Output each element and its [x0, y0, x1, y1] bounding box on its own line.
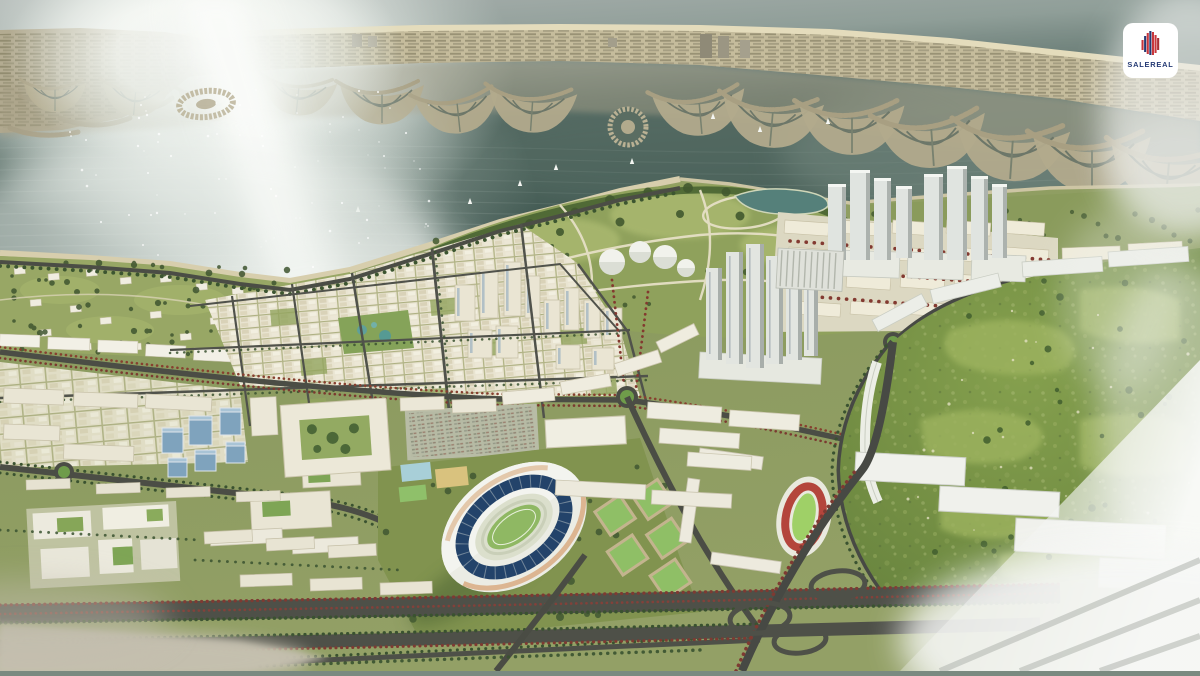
svg-text:SALEREAL: SALEREAL [1127, 60, 1173, 69]
